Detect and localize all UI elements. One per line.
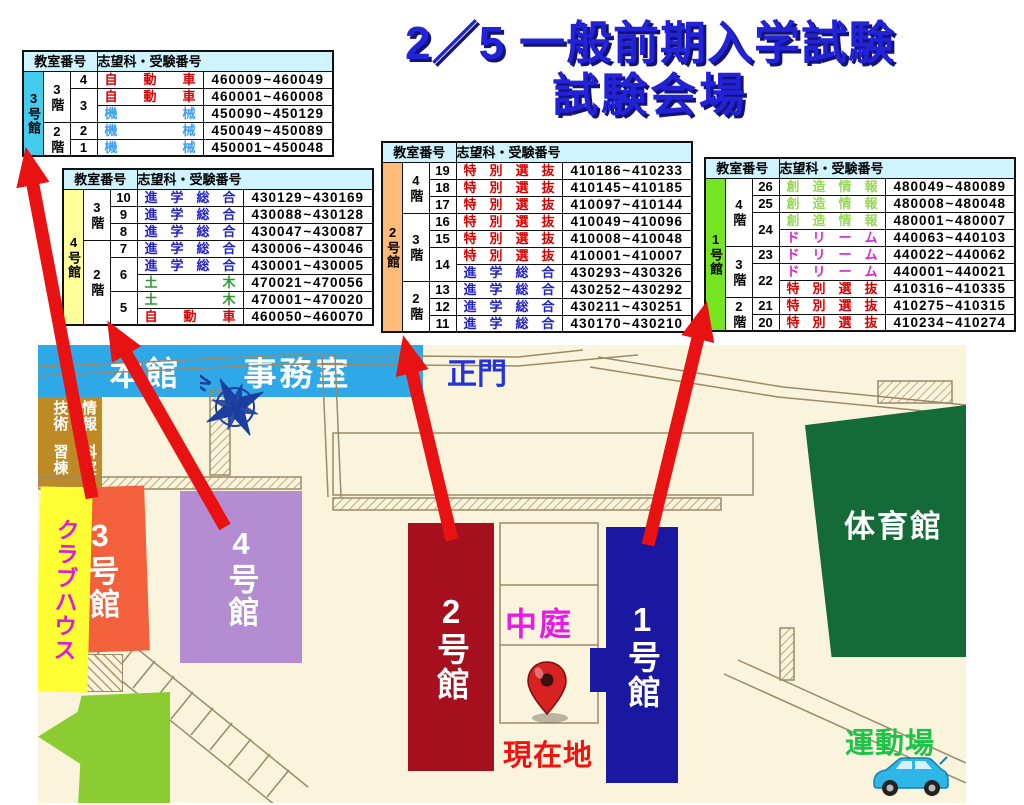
- number-range-cell: 410234~410274: [885, 314, 1015, 331]
- building-name-cell: 2号館: [382, 162, 402, 332]
- floor-cell: 3階: [83, 189, 110, 240]
- building-name-cell: 3号館: [23, 71, 43, 156]
- gym-label: 体育館: [844, 501, 943, 546]
- title-line2: 試験会場: [340, 70, 960, 122]
- subject-cell: 機械: [97, 122, 203, 139]
- room-number-cell: 26: [752, 178, 779, 195]
- room-number-cell: 17: [429, 196, 456, 213]
- floor-cell: 2階: [83, 240, 110, 325]
- exam-table-building2: 教室番号志望科・受験番号2号館4階19特別選抜410186~41023318特別…: [381, 141, 693, 333]
- subject-cell: 進学総合: [137, 257, 243, 274]
- number-range-cell: 410145~410185: [562, 179, 692, 196]
- exam-table-building1: 教室番号志望科・受験番号1号館4階26創造情報480049~48008925創造…: [704, 157, 1016, 332]
- subject-cell: 創造情報: [779, 195, 885, 212]
- room-number-cell: 22: [752, 263, 779, 297]
- subject-cell: 特別選抜: [456, 213, 562, 230]
- room-number-cell: 15: [429, 230, 456, 247]
- room-number-cell: 21: [752, 297, 779, 314]
- number-range-cell: 460009~460049: [203, 71, 333, 88]
- number-range-cell: 430252~430292: [562, 281, 692, 298]
- subject-cell: 創造情報: [779, 178, 885, 195]
- subject-cell: 進学総合: [456, 281, 562, 298]
- number-range-cell: 430006~430046: [243, 240, 373, 257]
- room-number-cell: 18: [429, 179, 456, 196]
- subject-cell: 土木: [137, 274, 243, 291]
- number-range-cell: 440063~440103: [885, 229, 1015, 246]
- number-range-cell: 480008~480048: [885, 195, 1015, 212]
- header-exam-number: 志望科・受験番号: [137, 169, 373, 189]
- subject-cell: 特別選抜: [456, 196, 562, 213]
- subject-cell: 進学総合: [137, 240, 243, 257]
- floor-cell: 3階: [402, 213, 429, 281]
- exam-venue-poster: { "title": { "line1": "2／5 一般前期入学試験", "l…: [0, 0, 1024, 805]
- subject-cell: 機械: [97, 139, 203, 156]
- room-number-cell: 11: [429, 315, 456, 332]
- exam-room-table: 教室番号志望科・受験番号3号館3階4自動車460009~4600493自動車46…: [22, 50, 334, 157]
- number-range-cell: 430129~430169: [243, 189, 373, 206]
- room-number-cell: 16: [429, 213, 456, 230]
- room-number-cell: 7: [110, 240, 137, 257]
- current-location-label: 現在地: [503, 742, 593, 771]
- room-number-cell: 23: [752, 246, 779, 263]
- number-range-cell: 440022~440062: [885, 246, 1015, 263]
- number-range-cell: 410275~410315: [885, 297, 1015, 314]
- room-number-cell: 3: [70, 88, 97, 122]
- number-range-cell: 430001~430005: [243, 257, 373, 274]
- room-number-cell: 24: [752, 212, 779, 246]
- campus-map: 3号館 4号館 2号館 1号館 本館 事務室 情報技術 科実習棟 体育館 クラブ…: [38, 345, 966, 803]
- header-exam-number: 志望科・受験番号: [456, 142, 692, 162]
- subject-cell: 進学総合: [456, 315, 562, 332]
- number-range-cell: 410186~410233: [562, 162, 692, 179]
- building-1-shape: 1号館: [606, 527, 678, 783]
- courtyard-label: 中庭: [505, 608, 573, 640]
- number-range-cell: 440001~440021: [885, 263, 1015, 280]
- subject-cell: 自動車: [97, 88, 203, 105]
- room-number-cell: 9: [110, 206, 137, 223]
- floor-cell: 2階: [43, 122, 70, 156]
- number-range-cell: 410008~410048: [562, 230, 692, 247]
- header-room-number: 教室番号: [705, 158, 779, 178]
- header-room-number: 教室番号: [63, 169, 137, 189]
- room-number-cell: 1: [70, 139, 97, 156]
- building-name-cell: 4号館: [63, 189, 83, 325]
- building-2-shape: 2号館: [408, 523, 494, 771]
- car-icon: [868, 752, 952, 800]
- number-range-cell: 450049~450089: [203, 122, 333, 139]
- subject-cell: 進学総合: [456, 298, 562, 315]
- number-range-cell: 470001~470020: [243, 291, 373, 308]
- header-exam-number: 志望科・受験番号: [97, 51, 333, 71]
- number-range-cell: 480001~480007: [885, 212, 1015, 229]
- main-gate-label: 正門: [447, 360, 507, 390]
- number-range-cell: 450001~450048: [203, 139, 333, 156]
- floor-cell: 4階: [402, 162, 429, 213]
- room-number-cell: 25: [752, 195, 779, 212]
- subject-cell: ドリーム: [779, 263, 885, 280]
- number-range-cell: 480049~480089: [885, 178, 1015, 195]
- room-number-cell: 8: [110, 223, 137, 240]
- number-range-cell: 430088~430128: [243, 206, 373, 223]
- number-range-cell: 410097~410144: [562, 196, 692, 213]
- room-number-cell: 12: [429, 298, 456, 315]
- subject-cell: 機械: [97, 105, 203, 122]
- location-pin-icon: [524, 660, 572, 724]
- number-range-cell: 410049~410096: [562, 213, 692, 230]
- subject-cell: 進学総合: [137, 206, 243, 223]
- room-number-cell: 6: [110, 257, 137, 291]
- subject-cell: 特別選抜: [779, 297, 885, 314]
- building-1-wing: [590, 648, 607, 692]
- number-range-cell: 410001~410007: [562, 247, 692, 264]
- subject-cell: 特別選抜: [779, 280, 885, 297]
- floor-cell: 3階: [725, 246, 752, 297]
- compass-rose-icon: N: [200, 372, 270, 442]
- subject-cell: 自動車: [137, 308, 243, 325]
- subject-cell: 進学総合: [137, 223, 243, 240]
- subject-cell: 創造情報: [779, 212, 885, 229]
- header-room-number: 教室番号: [23, 51, 97, 71]
- floor-cell: 2階: [725, 297, 752, 331]
- exam-table-building4: 教室番号志望科・受験番号4号館3階10進学総合430129~4301699進学総…: [62, 168, 374, 326]
- building-2-label: 2号館: [435, 593, 468, 702]
- clubhouse-banner: クラブハウス: [38, 486, 93, 692]
- subject-cell: ドリーム: [779, 229, 885, 246]
- subject-cell: 進学総合: [456, 264, 562, 281]
- header-room-number: 教室番号: [382, 142, 456, 162]
- number-range-cell: 460001~460008: [203, 88, 333, 105]
- number-range-cell: 470021~470056: [243, 274, 373, 291]
- room-number-cell: 13: [429, 281, 456, 298]
- floor-cell: 3階: [43, 71, 70, 122]
- number-range-cell: 450090~450129: [203, 105, 333, 122]
- title-line1: 2／5 一般前期入学試験: [340, 18, 960, 70]
- subject-cell: 特別選抜: [456, 162, 562, 179]
- number-range-cell: 430047~430087: [243, 223, 373, 240]
- exam-room-table: 教室番号志望科・受験番号2号館4階19特別選抜410186~41023318特別…: [381, 141, 693, 333]
- header-exam-number: 志望科・受験番号: [779, 158, 1015, 178]
- room-number-cell: 19: [429, 162, 456, 179]
- room-number-cell: 2: [70, 122, 97, 139]
- number-range-cell: 410316~410335: [885, 280, 1015, 297]
- floor-cell: 2階: [402, 281, 429, 332]
- exam-room-table: 教室番号志望科・受験番号1号館4階26創造情報480049~48008925創造…: [704, 157, 1016, 332]
- room-number-cell: 4: [70, 71, 97, 88]
- subject-cell: 特別選抜: [456, 247, 562, 264]
- building-4-shape: 4号館: [180, 491, 302, 663]
- subject-cell: 特別選抜: [456, 230, 562, 247]
- subject-cell: 土木: [137, 291, 243, 308]
- exam-room-table: 教室番号志望科・受験番号4号館3階10進学総合430129~4301699進学総…: [62, 168, 374, 326]
- subject-cell: 進学総合: [137, 189, 243, 206]
- floor-cell: 4階: [725, 178, 752, 246]
- room-number-cell: 14: [429, 247, 456, 281]
- building-1-label: 1号館: [626, 601, 659, 710]
- room-number-cell: 5: [110, 291, 137, 325]
- page-title: 2／5 一般前期入学試験 試験会場: [340, 18, 960, 121]
- subject-cell: 特別選抜: [456, 179, 562, 196]
- number-range-cell: 430211~430251: [562, 298, 692, 315]
- building-name-cell: 1号館: [705, 178, 725, 331]
- number-range-cell: 430293~430326: [562, 264, 692, 281]
- subject-cell: 自動車: [97, 71, 203, 88]
- building-4-label: 4号館: [226, 526, 257, 629]
- room-number-cell: 20: [752, 314, 779, 331]
- number-range-cell: 430170~430210: [562, 315, 692, 332]
- clubhouse-label: クラブハウス: [51, 517, 78, 662]
- subject-cell: ドリーム: [779, 246, 885, 263]
- number-range-cell: 460050~460070: [243, 308, 373, 325]
- north-label: N: [200, 372, 216, 396]
- subject-cell: 特別選抜: [779, 314, 885, 331]
- room-number-cell: 10: [110, 189, 137, 206]
- exam-table-building3: 教室番号志望科・受験番号3号館3階4自動車460009~4600493自動車46…: [22, 50, 334, 157]
